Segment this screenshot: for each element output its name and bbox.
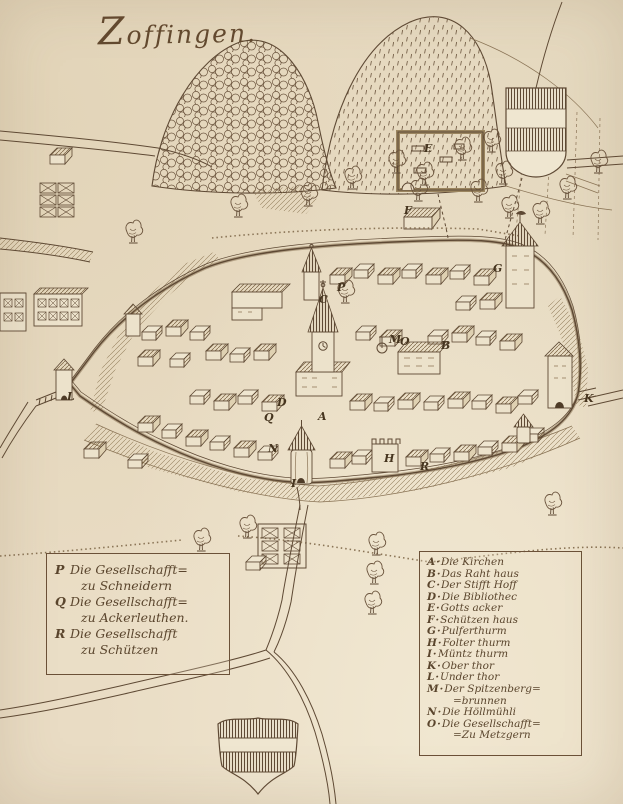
legend-text: Pulferthurm (442, 625, 507, 637)
house (142, 326, 162, 340)
ober-gate-tower (545, 342, 573, 408)
legend-text: Gotts acker (441, 602, 503, 614)
forest-hill-right (322, 17, 506, 194)
field-plot (40, 195, 56, 205)
map-marker-O: O (400, 335, 410, 348)
legend-text: Ober thor (442, 660, 494, 672)
field-plot (262, 541, 278, 551)
legend-entry-Q: Q Die Gesellschafft= (55, 594, 223, 610)
tree (560, 176, 577, 199)
legend-text: Schützen haus (440, 614, 518, 626)
legend-text: Der Stifft Hoff (441, 579, 517, 591)
house (448, 392, 470, 408)
house (350, 394, 372, 410)
house (330, 452, 352, 468)
legend-text: Under thor (440, 671, 499, 683)
house (186, 430, 208, 446)
legend-text: Folter thurm (443, 637, 511, 649)
legend-text-line2: zu Schneidern (55, 578, 223, 594)
tree (240, 515, 257, 538)
house (456, 296, 476, 310)
field-plot (58, 183, 74, 193)
legend-societies-rows: P Die Gesellschafft=zu SchneidernQ Die G… (55, 562, 223, 658)
stift-spire (302, 244, 321, 300)
legend-text: Die Gesellschafft= (442, 718, 541, 730)
house (214, 394, 236, 410)
tree (502, 195, 519, 218)
legend-text: Die Höllmühli (442, 706, 516, 718)
house (496, 397, 518, 413)
legend-text-line2: =Zu Metzgern (427, 730, 577, 742)
map-title: Zoffingen. (98, 7, 258, 54)
muentz-round-tower (288, 420, 315, 484)
legend-text: Die Gesellschafft (66, 626, 177, 641)
tree (545, 492, 562, 515)
house (476, 331, 496, 345)
field-plot (40, 207, 56, 217)
farm-top-left (40, 148, 74, 217)
house (50, 148, 72, 164)
stream (0, 238, 93, 262)
house (450, 265, 470, 279)
house (398, 393, 420, 409)
map-marker-Q: Q (264, 411, 274, 424)
house (518, 390, 538, 404)
house (402, 264, 422, 278)
map-marker-E: E (423, 142, 433, 155)
legend-letter: A (427, 557, 441, 569)
map-marker-D: D (276, 396, 287, 409)
house (206, 344, 228, 360)
map-marker-H: H (383, 452, 395, 465)
house (426, 268, 448, 284)
map-marker-A: A (317, 410, 327, 423)
legend-letter: M (427, 684, 444, 696)
legend-text: Der Spitzenberg= (444, 683, 540, 695)
map-marker-B: B (440, 339, 450, 352)
legend-places-box: ADie KirchenBDas Raht hausCDer Stifft Ho… (419, 551, 582, 756)
house (424, 396, 444, 410)
legend-letter: P (55, 562, 66, 578)
legend-text: Die Gesellschafft= (66, 594, 188, 609)
bottom-shield (216, 716, 300, 796)
map-marker-G: G (493, 262, 502, 275)
southeast-round-tower (514, 414, 533, 443)
house (452, 326, 474, 342)
legend-text: Das Raht haus (442, 568, 519, 580)
legend-entry-M: MDer Spitzenberg= (427, 684, 577, 696)
legend-entry-R: R Die Gesellschafft (55, 626, 223, 642)
legend-letter: R (55, 626, 66, 642)
house (234, 441, 256, 457)
house (162, 424, 182, 438)
tree (126, 220, 143, 243)
map-marker-N: N (267, 442, 279, 455)
map-marker-K: K (583, 392, 594, 405)
legend-text: Die Gesellschafft= (66, 562, 188, 577)
mill-house (84, 442, 106, 458)
house (378, 268, 400, 284)
house (138, 416, 160, 432)
top-right-shield (506, 2, 566, 178)
house (238, 390, 258, 404)
map-marker-R: R (419, 460, 429, 473)
house (430, 448, 450, 462)
legend-letter: E (427, 603, 441, 615)
field-plot (284, 541, 300, 551)
powder-tower (502, 211, 538, 308)
house (230, 348, 250, 362)
legend-letter: C (427, 580, 441, 592)
house (472, 395, 492, 409)
map-marker-P: P (336, 281, 346, 294)
field-plot (262, 528, 278, 538)
legend-entry-P: P Die Gesellschafft= (55, 562, 223, 578)
house (166, 320, 188, 336)
tree (231, 194, 248, 217)
house (254, 344, 276, 360)
stift-hoff (232, 284, 290, 320)
map-marker-L: L (66, 390, 75, 403)
legend-text: Müntz thurm (438, 648, 508, 660)
map-marker-I: I (290, 477, 297, 490)
legend-places-rows: ADie KirchenBDas Raht hausCDer Stifft Ho… (427, 557, 577, 742)
house (374, 397, 394, 411)
house (170, 353, 190, 367)
field-plot (58, 207, 74, 217)
tree (533, 201, 550, 224)
map-page: ABCDEFGHIKLMNOPQR Zoffingen. P Die Gesel… (0, 0, 623, 804)
house (190, 326, 210, 340)
house (480, 293, 502, 309)
trees-group (126, 129, 608, 614)
house (138, 350, 160, 366)
field-plot (58, 195, 74, 205)
map-marker-F: F (403, 204, 413, 217)
tree (365, 591, 382, 614)
house (500, 334, 522, 350)
house (190, 390, 210, 404)
house (352, 450, 372, 464)
house (354, 264, 374, 278)
legend-text-line2: zu Schützen (55, 642, 223, 658)
tree (367, 561, 384, 584)
legend-text-line2: zu Ackerleuthen. (55, 610, 223, 626)
field-plot (40, 183, 56, 193)
legend-text: Die Bibliothec (442, 591, 517, 603)
legend-text: Die Kirchen (441, 556, 504, 568)
map-marker-C: C (319, 293, 328, 306)
tree (369, 532, 386, 555)
legend-letter: O (427, 719, 442, 731)
legend-societies-box: P Die Gesellschafft=zu SchneidernQ Die G… (46, 553, 230, 675)
tree (194, 528, 211, 551)
west-suburb-buildings (0, 288, 88, 331)
bridge (36, 392, 56, 406)
house (210, 436, 230, 450)
house (356, 326, 376, 340)
forest-hill-left (152, 40, 336, 193)
field-plot (284, 528, 300, 538)
legend-letter: Q (55, 594, 66, 610)
legend-letter: N (427, 707, 442, 719)
